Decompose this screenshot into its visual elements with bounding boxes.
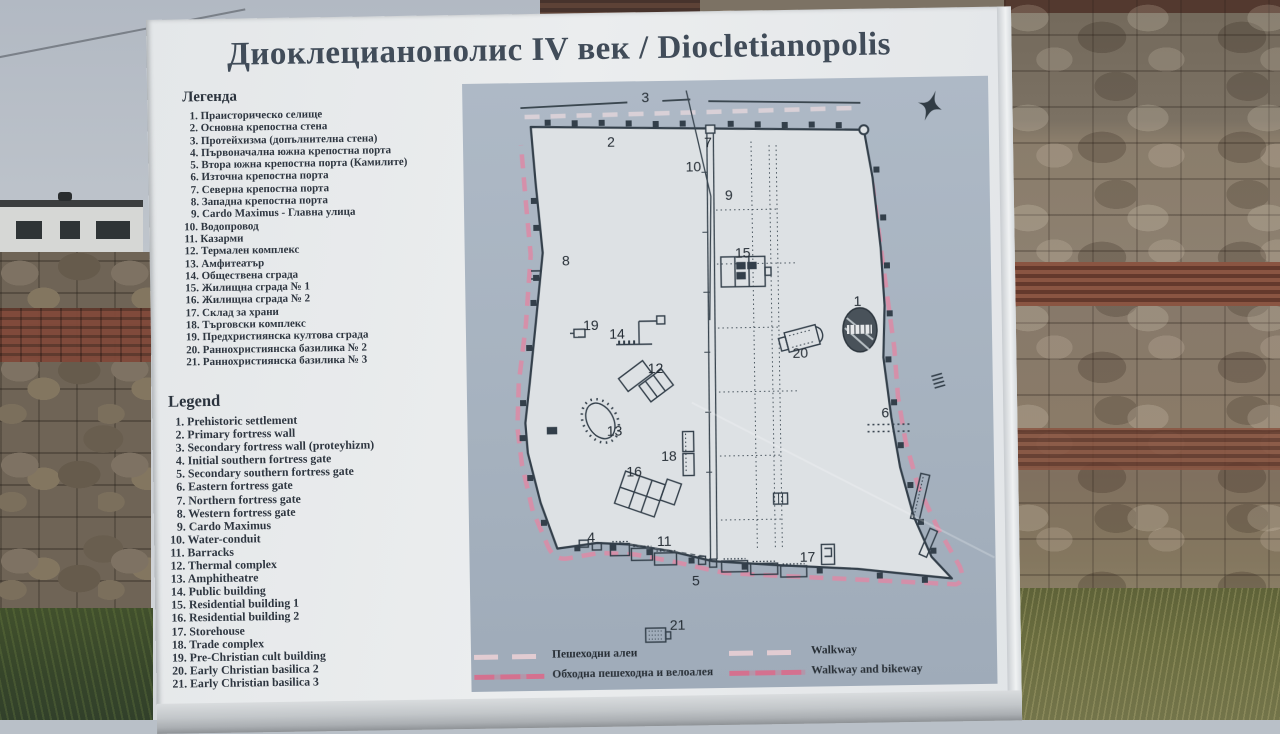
bikeway-label-en: Walkway and bikeway (811, 663, 922, 677)
ruin-wall-right (1004, 0, 1280, 612)
hatch-icon (931, 373, 945, 388)
info-sign-board: Диоклецианополис IV век / Diocletianopol… (146, 6, 1022, 733)
bikeway-swatch (729, 670, 805, 676)
chimney (58, 192, 72, 201)
brick-band-left (0, 308, 151, 362)
brick-band-right-lower (1004, 428, 1280, 470)
walkway-swatch (729, 650, 805, 656)
grass-left (0, 608, 153, 720)
legend-en-list: 1. Prehistoric settlement2. Primary fort… (168, 411, 482, 691)
bikeway-swatch (474, 674, 544, 680)
walkway-label-en: Walkway (811, 644, 857, 657)
building-window (96, 221, 130, 239)
sign-bottom-rim (157, 690, 1022, 734)
bikeway-label-bg: Обходна пешеходна и велоалея (552, 666, 713, 681)
stone-wall-left (0, 252, 151, 614)
city-wall (521, 120, 952, 585)
building-window (16, 221, 42, 239)
legend-bg-heading: Легенда (182, 85, 482, 107)
site-1-prehistoric (843, 308, 878, 353)
brick-band-right-upper (1004, 262, 1280, 306)
map-panel: 123456789101112131415161718192021 Пешехо… (462, 76, 997, 692)
sign-title: Диоклецианополис IV век / Diocletianopol… (146, 25, 971, 75)
north-gate (706, 125, 715, 133)
grass-right (1004, 588, 1280, 720)
legend-bg-list: 1. Праисторическо селище2. Основна крепо… (182, 106, 486, 369)
small-west-building (547, 428, 556, 434)
building-21-basilica3 (646, 628, 671, 642)
compass-icon (913, 86, 947, 124)
walkway-label-bg: Пешеходни алеи (552, 647, 638, 660)
corner-tower (859, 125, 868, 134)
legend-item: 21. Early Christian basilica 3 (172, 673, 482, 691)
walkway-swatch (474, 654, 544, 660)
legend-bulgarian: Легенда 1. Праисторическо селище2. Основ… (182, 85, 486, 369)
city-plan-svg (462, 76, 997, 692)
legend-english: Legend 1. Prehistoric settlement2. Prima… (168, 387, 483, 691)
legend-en-heading: Legend (168, 387, 478, 412)
building-window (60, 221, 80, 239)
